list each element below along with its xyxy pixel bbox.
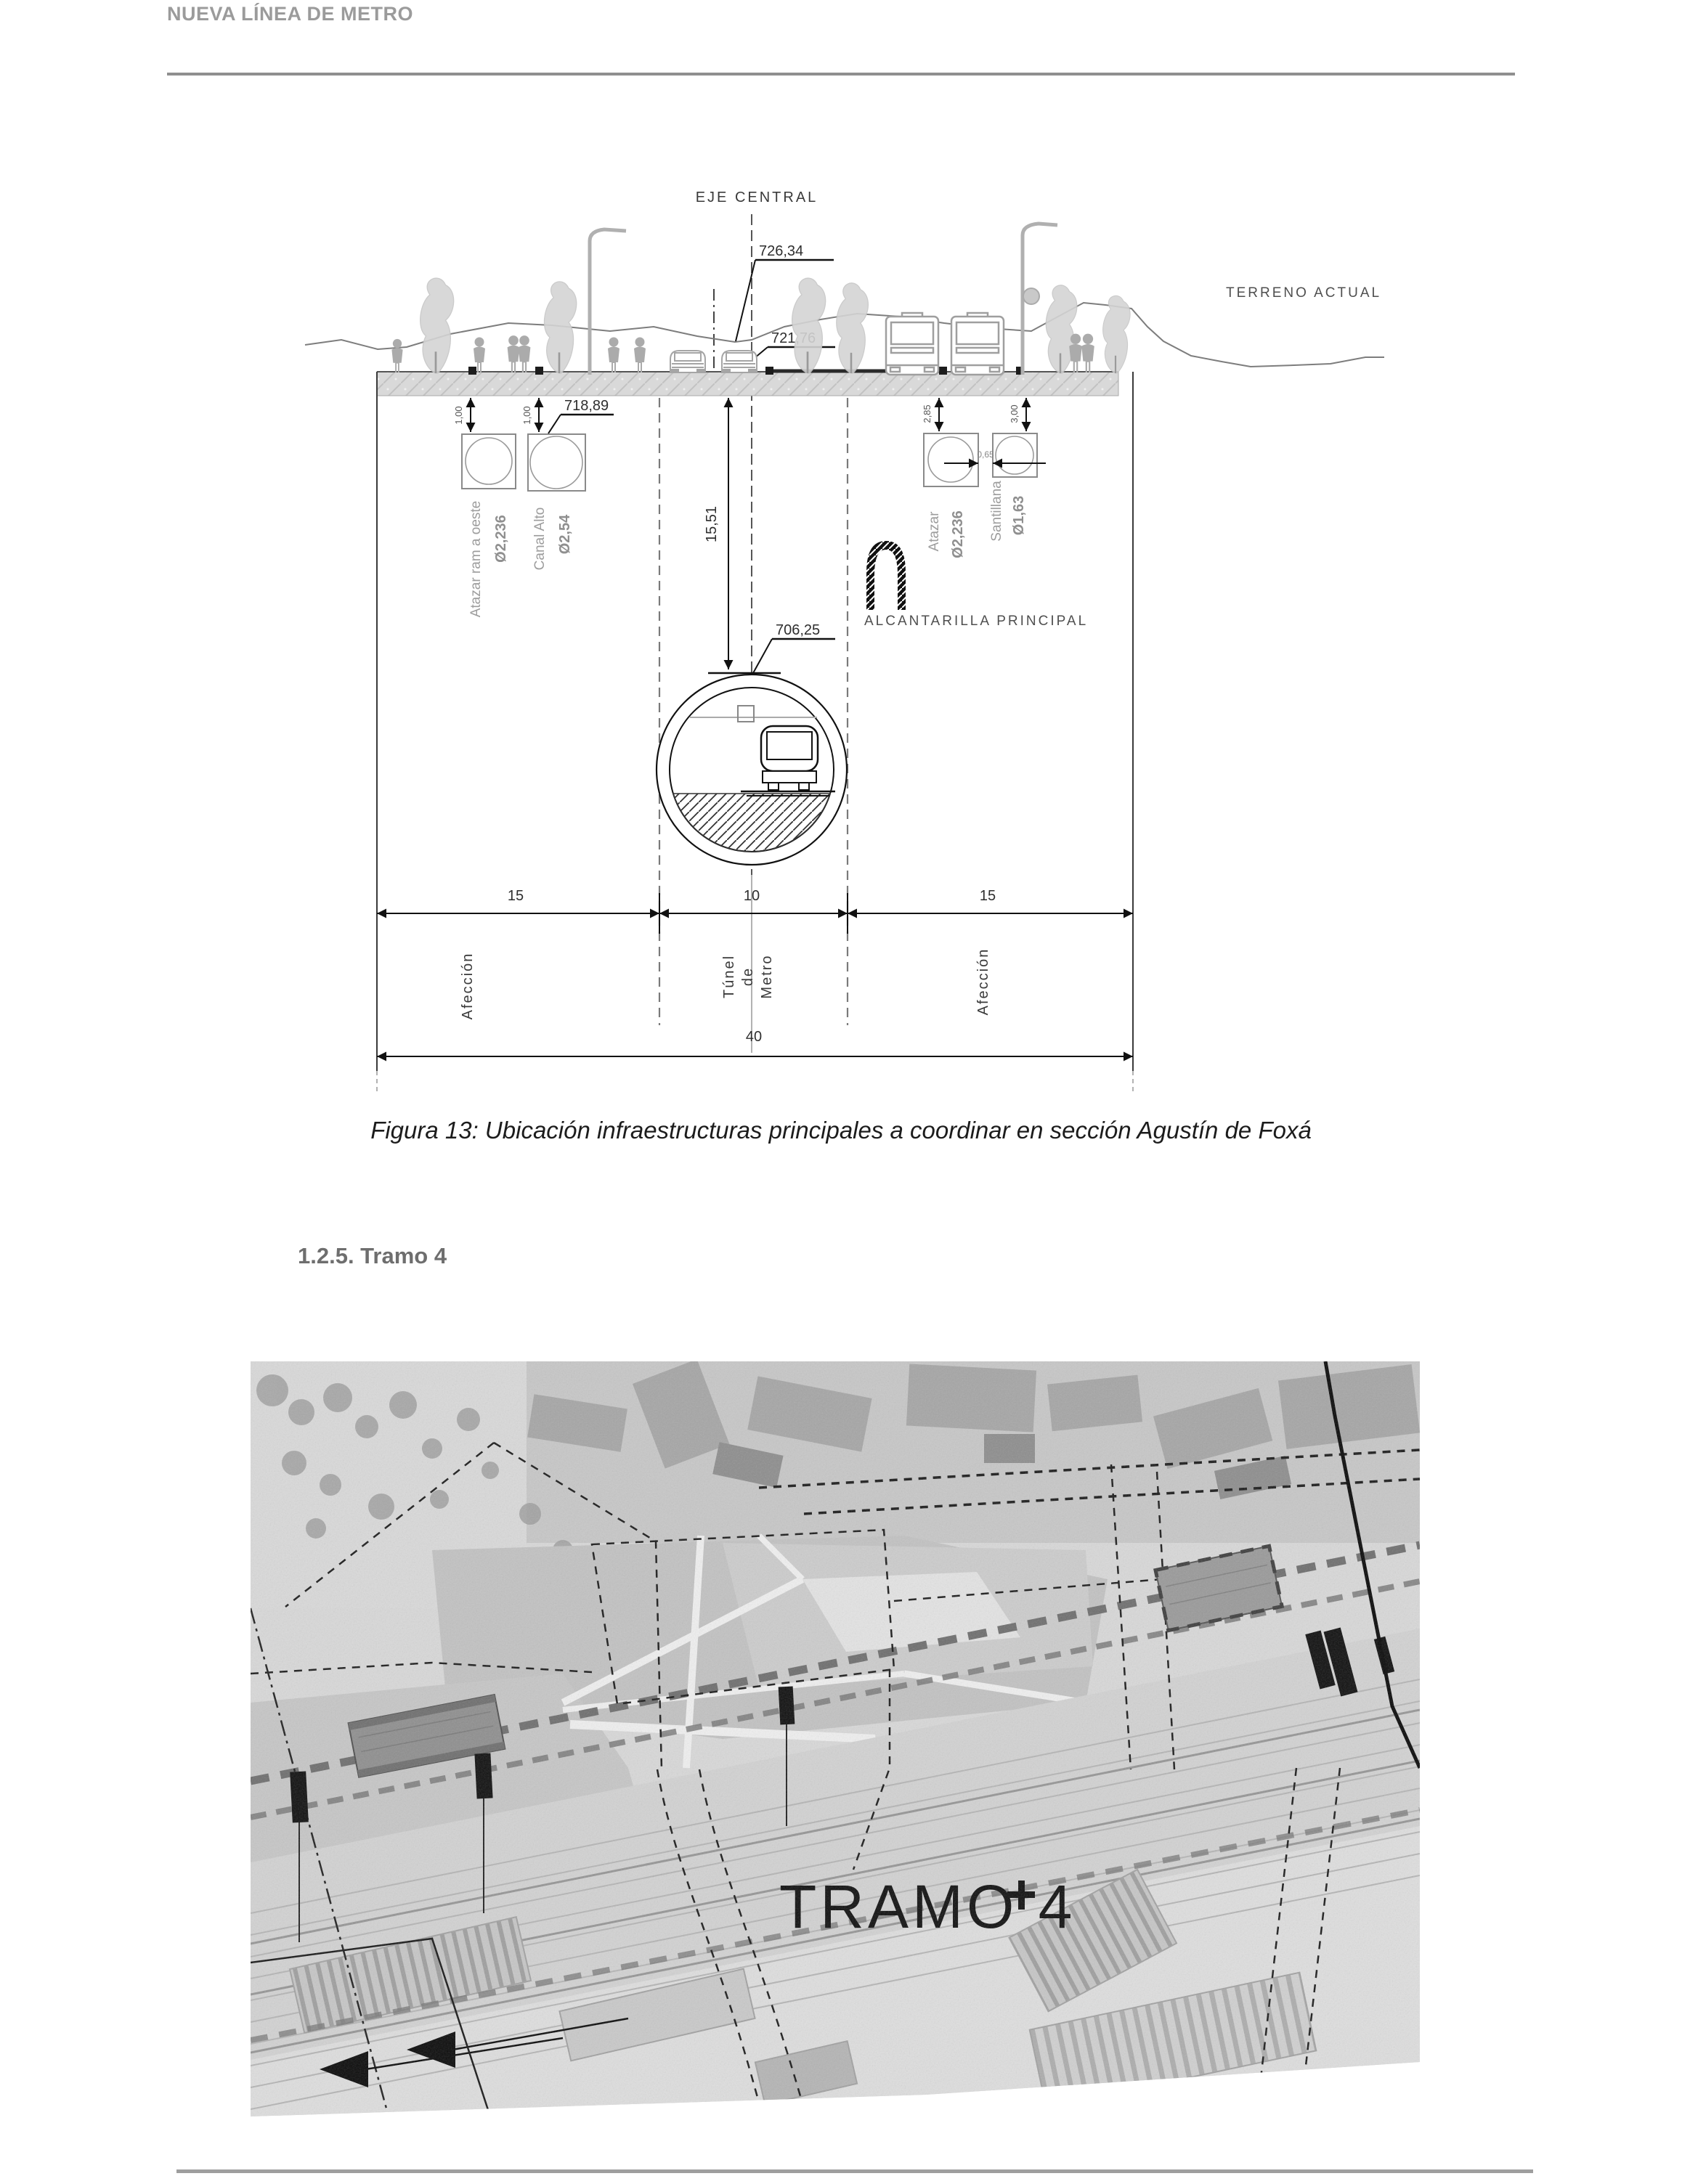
svg-text:0,65: 0,65	[977, 449, 994, 460]
svg-text:1,00: 1,00	[453, 406, 464, 424]
street-surface	[377, 372, 1118, 396]
sewer-arch	[866, 541, 906, 610]
pipe-box-atazar-oeste	[462, 434, 516, 489]
svg-text:40: 40	[746, 1029, 762, 1045]
pipe-cover-dim-left-2: 1,00	[521, 398, 539, 432]
zone-right-label: Afección	[975, 948, 991, 1016]
cross-section-diagram: EJE CENTRAL TERRENO ACTUAL 726,34 721,76	[291, 167, 1423, 1147]
page-header-title: NUEVA LÍNEA DE METRO	[167, 3, 413, 25]
svg-text:15,51: 15,51	[704, 506, 720, 542]
pipe-box-canal-alto	[528, 434, 585, 491]
svg-text:718,89: 718,89	[564, 398, 609, 414]
total-width-dim: 40	[377, 1029, 1133, 1056]
pipe-dia-atazar-oeste: Ø2,236	[493, 515, 509, 563]
svg-text:3,00: 3,00	[1009, 404, 1020, 423]
pipe-cover-dim-left-1: 1,00	[453, 398, 471, 432]
header-rule	[167, 73, 1515, 76]
svg-text:726,34: 726,34	[759, 243, 803, 259]
pipe-dia-atazar: Ø2,236	[950, 510, 966, 558]
zone-left-label: Afección	[460, 953, 476, 1020]
width-left: 15	[508, 888, 524, 904]
section-heading: 1.2.5. Tramo 4	[298, 1243, 447, 1269]
footer-rule	[176, 2169, 1533, 2173]
zone-tunnel-l2: de	[740, 967, 756, 986]
svg-text:2,85: 2,85	[922, 404, 933, 423]
elevation-718: 718,89	[548, 398, 614, 433]
width-tunnel: 10	[744, 888, 760, 904]
svg-text:1,00: 1,00	[521, 406, 532, 424]
photo-grain	[251, 1361, 1420, 2116]
zone-tunnel-l3: Metro	[759, 954, 775, 998]
sewer-label: ALCANTARILLA PRINCIPAL	[864, 614, 1088, 629]
document-page: { "header": { "title": "NUEVA LÍNEA DE M…	[0, 0, 1682, 2184]
pipe-name-santillana: Santillana	[989, 481, 1004, 542]
pipe-box-santillana	[993, 433, 1037, 477]
streetlight-left	[590, 229, 626, 375]
metro-tunnel	[657, 675, 847, 865]
width-right: 15	[980, 888, 996, 904]
elevation-706: 706,25	[753, 622, 835, 673]
pipe-dia-canal-alto: Ø2,54	[557, 514, 573, 554]
tramo4-aerial-map: TRAMO 4	[251, 1361, 1420, 2116]
axis-label: EJE CENTRAL	[696, 190, 818, 205]
svg-text:706,25: 706,25	[776, 622, 820, 638]
pipe-name-atazar-oeste: Atazar ram a oeste	[468, 501, 484, 618]
pipe-dia-santillana: Ø1,63	[1011, 496, 1027, 535]
pipe-cover-dim-right-2: 3,00	[1009, 398, 1026, 431]
terrain-label: TERRENO ACTUAL	[1226, 285, 1381, 301]
depth-dim: 15,51	[704, 398, 781, 673]
pipe-box-atazar	[924, 433, 978, 486]
pipe-cover-dim-right-1: 2,85	[922, 398, 939, 431]
pipe-name-atazar: Atazar	[927, 511, 942, 552]
zone-tunnel-l1: Túnel	[721, 955, 737, 998]
aerial-photo: TRAMO 4	[251, 1361, 1420, 2116]
figure-caption: Figura 13: Ubicación infraestructuras pr…	[0, 1117, 1682, 1144]
pipe-name-canal-alto: Canal Alto	[532, 508, 548, 571]
